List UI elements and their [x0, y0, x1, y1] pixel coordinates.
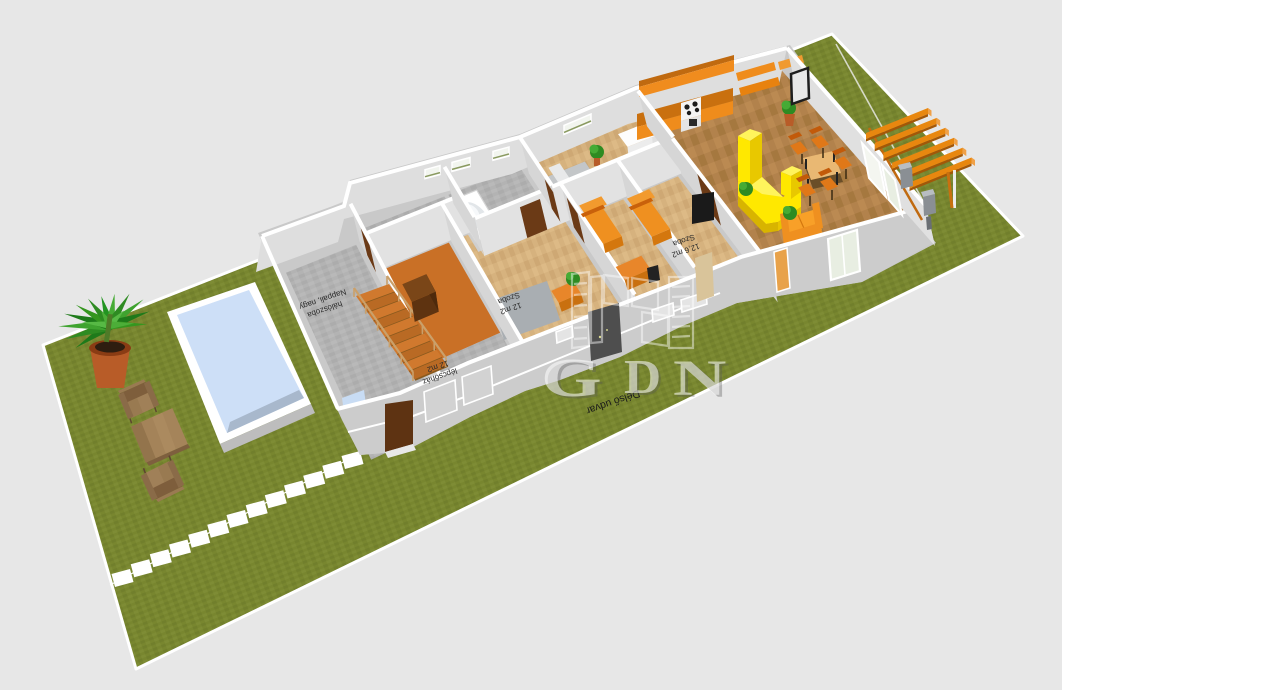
svg-text:G: G: [541, 347, 602, 408]
svg-text:N: N: [673, 349, 727, 406]
svg-text:D: D: [624, 349, 661, 404]
